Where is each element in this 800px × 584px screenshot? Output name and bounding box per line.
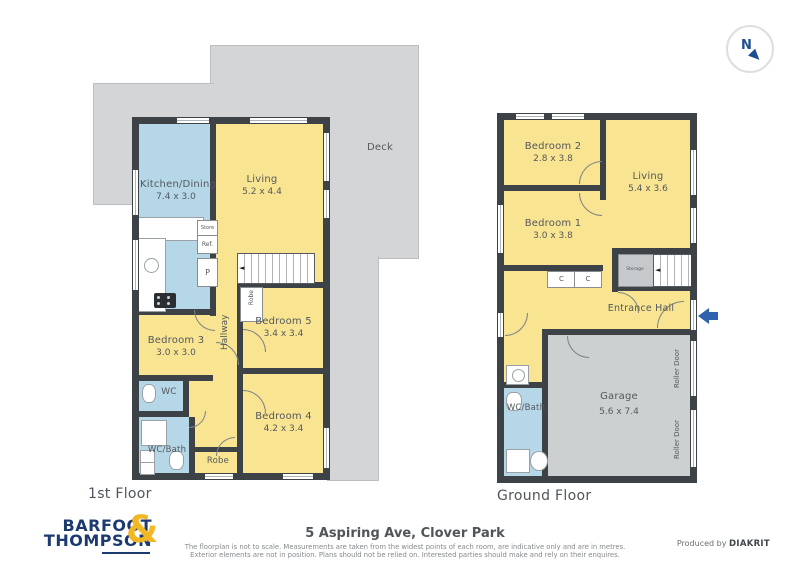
window bbox=[324, 190, 329, 218]
window bbox=[324, 428, 329, 468]
room-name: Bedroom 1 bbox=[507, 218, 599, 231]
property-address: 5 Aspiring Ave, Clover Park bbox=[200, 526, 610, 541]
room-name: Bedroom 3 bbox=[140, 335, 212, 348]
room-label-garage: Garage 5.6 x 7.4 bbox=[559, 391, 679, 418]
stairs-floor1: ◄ bbox=[237, 253, 315, 284]
wall bbox=[542, 329, 690, 335]
window bbox=[691, 150, 696, 195]
disclaimer-line2: Exterior elements are not in position. P… bbox=[155, 551, 655, 560]
room-dims: 5.4 x 3.6 bbox=[608, 184, 688, 195]
roller-door-opening bbox=[691, 410, 696, 467]
logo-tagline-rule bbox=[102, 552, 150, 554]
room-name: Bedroom 5 bbox=[244, 316, 323, 329]
room-label-kitchen: Kitchen/Dining 7.4 x 3.0 bbox=[140, 179, 212, 203]
wall bbox=[139, 411, 189, 417]
ground-floor-building: C C Storage ◄ Bedroom 2 2.8 x 3.8 Living bbox=[497, 113, 697, 483]
window bbox=[133, 170, 138, 215]
room-label-bedroom2: Bedroom 2 2.8 x 3.8 bbox=[507, 141, 599, 165]
window bbox=[324, 133, 329, 181]
barfoot-thompson-logo: BARFOOT THOMPSON & bbox=[40, 518, 152, 548]
bath-basin bbox=[530, 451, 548, 471]
room-dims: 5.2 x 4.4 bbox=[222, 187, 302, 198]
robe-closet-label: Robe bbox=[248, 290, 255, 305]
logo-ampersand: & bbox=[126, 515, 158, 545]
stairs-ground: ◄ bbox=[653, 254, 691, 287]
storage-label: Storage bbox=[621, 267, 649, 272]
window bbox=[498, 313, 503, 337]
producer-name: DIAKRIT bbox=[729, 539, 770, 549]
room-name: Kitchen/Dining bbox=[140, 179, 212, 192]
room-dims: 5.6 x 7.4 bbox=[559, 407, 679, 418]
deck-label: Deck bbox=[356, 142, 404, 155]
wc-label: WC bbox=[152, 387, 186, 398]
window bbox=[133, 240, 138, 290]
produced-by-text: Produced by bbox=[677, 539, 727, 548]
room-label-bedroom1: Bedroom 1 3.0 x 3.8 bbox=[507, 218, 599, 242]
wall bbox=[504, 185, 606, 191]
window bbox=[283, 474, 313, 479]
stairs-direction-arrow: ◄ bbox=[239, 265, 244, 272]
room-label-bedroom4: Bedroom 4 4.2 x 3.4 bbox=[244, 411, 323, 435]
window bbox=[691, 208, 696, 243]
window bbox=[177, 118, 209, 123]
storage-cupboard: Storage bbox=[618, 254, 654, 287]
room-label-bedroom5: Bedroom 5 3.4 x 3.4 bbox=[244, 316, 323, 340]
kitchen-sink bbox=[144, 258, 159, 273]
room-name: Living bbox=[608, 171, 688, 184]
wc-bath-label-ground: WC/Bath bbox=[501, 403, 551, 414]
room-name: Living bbox=[222, 174, 302, 187]
room-dims: 7.4 x 3.0 bbox=[140, 192, 212, 203]
room-name: Garage bbox=[559, 391, 679, 404]
room-label-bedroom3: Bedroom 3 3.0 x 3.0 bbox=[140, 335, 212, 359]
floor1-building: Store Ref. P ◄ Robe Kitchen/Dining 7.4 x… bbox=[132, 117, 330, 480]
producer-credit: Produced by DIAKRIT bbox=[640, 539, 770, 549]
shower bbox=[141, 420, 167, 446]
washer bbox=[140, 462, 155, 475]
stairs-direction-arrow: ◄ bbox=[655, 267, 660, 274]
hallway-label: Hallway bbox=[220, 302, 230, 362]
room-dims: 4.2 x 3.4 bbox=[244, 424, 323, 435]
window bbox=[205, 474, 233, 479]
laundry-tub bbox=[506, 365, 529, 385]
room-name: Bedroom 4 bbox=[244, 411, 323, 424]
wall bbox=[139, 375, 213, 381]
window bbox=[498, 205, 503, 253]
compass-north-label: N bbox=[741, 38, 752, 53]
window bbox=[516, 114, 544, 119]
compass: N bbox=[726, 25, 774, 73]
room-label-living: Living 5.4 x 3.6 bbox=[608, 171, 688, 195]
wc-bath-label: WC/Bath bbox=[140, 445, 194, 456]
room-dims: 3.0 x 3.0 bbox=[140, 348, 212, 359]
window bbox=[250, 118, 307, 123]
room-label-living: Living 5.2 x 4.4 bbox=[222, 174, 302, 198]
fridge: Ref. bbox=[197, 235, 218, 254]
ground-floor-caption: Ground Floor bbox=[497, 488, 591, 504]
roller-door-opening bbox=[691, 341, 696, 396]
shower bbox=[506, 449, 530, 473]
closet-c2: C bbox=[574, 271, 602, 288]
wall bbox=[243, 368, 323, 374]
robe-label: Robe bbox=[198, 456, 238, 467]
roller-door-label-bottom: Roller Door bbox=[673, 409, 681, 471]
entrance-hall-label: Entrance Hall bbox=[592, 303, 690, 315]
room-dims: 3.4 x 3.4 bbox=[244, 329, 323, 340]
pantry: P bbox=[197, 258, 218, 287]
entrance-arrow-icon bbox=[698, 308, 720, 324]
room-dims: 3.0 x 3.8 bbox=[507, 231, 599, 242]
stove bbox=[154, 293, 176, 308]
floor1-caption: 1st Floor bbox=[88, 486, 152, 502]
entrance-door-opening bbox=[691, 300, 696, 330]
roller-door-label-top: Roller Door bbox=[673, 338, 681, 400]
floorplan-page: N Deck Sto bbox=[0, 0, 800, 584]
room-name: Bedroom 2 bbox=[507, 141, 599, 154]
closet-c1: C bbox=[547, 271, 576, 288]
window bbox=[552, 114, 584, 119]
deck-area-right-strip bbox=[327, 256, 379, 481]
room-dims: 2.8 x 3.8 bbox=[507, 154, 599, 165]
